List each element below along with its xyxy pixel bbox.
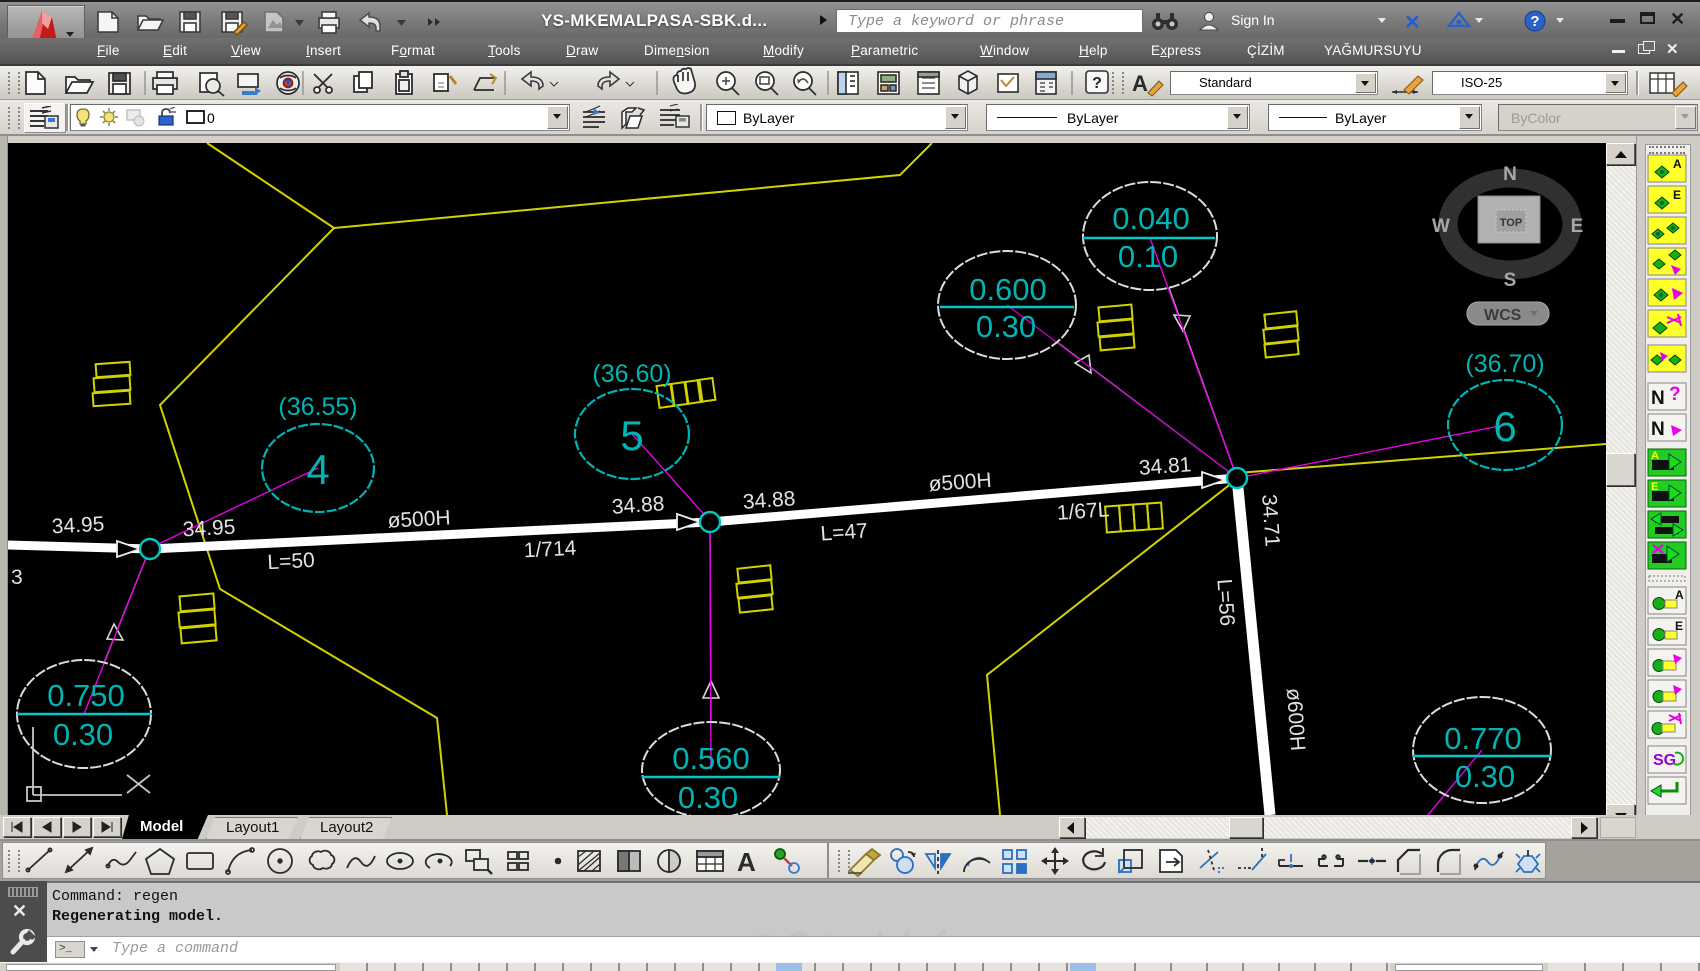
svg-text:34.88: 34.88 (611, 492, 665, 519)
svg-text:S: S (1504, 270, 1517, 291)
svg-text:E: E (1651, 481, 1658, 493)
svg-text:(36.60): (36.60) (592, 360, 671, 388)
svg-text:ø600H: ø600H (1282, 687, 1309, 751)
svg-text:4: 4 (306, 446, 329, 493)
svg-text:(36.55): (36.55) (278, 393, 357, 421)
svg-text:A: A (1673, 157, 1682, 171)
svg-text:?: ? (1530, 13, 1539, 30)
svg-text:0.040: 0.040 (1112, 201, 1190, 236)
svg-text:W: W (1432, 216, 1450, 237)
svg-text:N: N (1651, 419, 1665, 440)
svg-text:0.30: 0.30 (53, 717, 113, 752)
svg-text:0.600: 0.600 (969, 272, 1047, 307)
svg-text:(36.70): (36.70) (1465, 350, 1544, 378)
svg-text:A: A (1675, 588, 1684, 602)
svg-text:1/67L: 1/67L (1056, 498, 1110, 525)
svg-text:34.95: 34.95 (182, 516, 236, 542)
svg-text:E: E (1675, 619, 1683, 633)
svg-text:0.10: 0.10 (1118, 239, 1178, 274)
svg-text:34.81: 34.81 (1138, 453, 1192, 480)
svg-text:E: E (1673, 188, 1681, 202)
svg-text:0.560: 0.560 (672, 741, 750, 776)
svg-text:?: ? (1669, 384, 1681, 405)
svg-text:34.71: 34.71 (1257, 494, 1284, 548)
svg-text:ø500H: ø500H (928, 469, 992, 496)
svg-text:34.88: 34.88 (742, 487, 796, 514)
svg-text:0.750: 0.750 (47, 678, 125, 713)
svg-text:3: 3 (11, 566, 23, 589)
svg-text:N: N (1503, 164, 1517, 185)
svg-text:N: N (1651, 388, 1665, 409)
svg-text:5: 5 (620, 412, 643, 459)
svg-text:34.95: 34.95 (51, 513, 105, 539)
svg-text:0.770: 0.770 (1444, 721, 1522, 756)
svg-text:?: ? (1092, 75, 1102, 92)
svg-text:1/714: 1/714 (523, 537, 577, 563)
svg-text:L=50: L=50 (267, 549, 315, 574)
svg-text:0.30: 0.30 (976, 309, 1036, 344)
svg-text:L=56: L=56 (1212, 578, 1238, 627)
svg-text:WCS: WCS (1484, 307, 1522, 324)
svg-text:6: 6 (1493, 403, 1516, 450)
svg-text:A: A (737, 847, 756, 877)
svg-text:SG: SG (1653, 752, 1676, 769)
svg-text:ø500H: ø500H (387, 506, 451, 532)
svg-text:A: A (1132, 71, 1148, 96)
svg-text:E: E (1571, 216, 1584, 237)
svg-text:L=47: L=47 (820, 519, 869, 545)
svg-text:0.30: 0.30 (1455, 759, 1515, 794)
svg-text:TOP: TOP (1500, 217, 1522, 229)
svg-text:A: A (1651, 450, 1659, 462)
svg-text:0.30: 0.30 (678, 780, 738, 815)
